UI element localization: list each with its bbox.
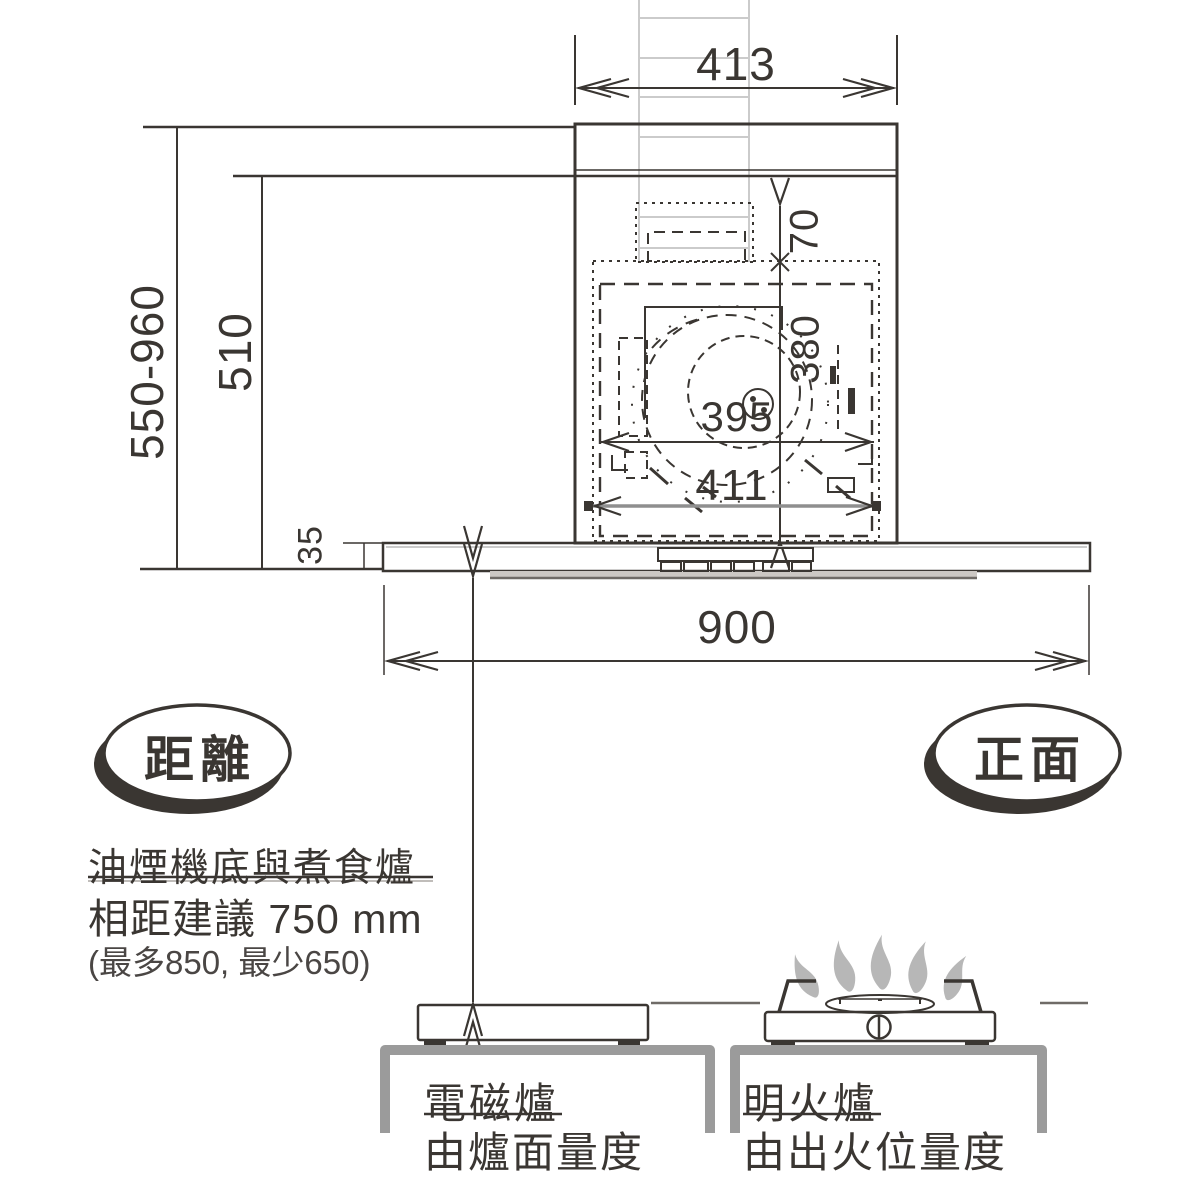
dim-label-70: 70: [783, 208, 828, 255]
diagram-canvas: 413 550-960 510 35 70 380 395 411 900 距離…: [0, 0, 1200, 1200]
badge-front-view: 正面: [974, 720, 1086, 792]
induction-cooktop: [418, 1005, 648, 1046]
dim-label-395: 395: [700, 393, 773, 441]
dim-label-413: 413: [696, 37, 776, 91]
gas-stove: [765, 934, 995, 1047]
control-buttons: [661, 562, 811, 571]
induction-stove-subtitle: 由爐面量度: [424, 1119, 644, 1180]
dim-label-900: 900: [697, 600, 777, 654]
note-line-3: (最多850, 最少650): [88, 936, 370, 984]
dim-label-35: 35: [292, 525, 331, 565]
diagram-linework: [0, 0, 1200, 1200]
dim-label-550-960: 550-960: [120, 284, 174, 460]
flame-icon: [787, 934, 975, 1003]
badge-distance: 距離: [144, 720, 256, 792]
dim-label-380: 380: [784, 314, 829, 384]
gas-stove-subtitle: 由出火位量度: [743, 1119, 1007, 1180]
dim-label-510: 510: [208, 312, 262, 392]
dim-label-411: 411: [695, 461, 768, 511]
left-dimension-lines: [140, 127, 575, 569]
dim-hood-to-stove: [464, 526, 482, 1054]
control-panel: [658, 548, 813, 571]
burner: [826, 995, 934, 1013]
